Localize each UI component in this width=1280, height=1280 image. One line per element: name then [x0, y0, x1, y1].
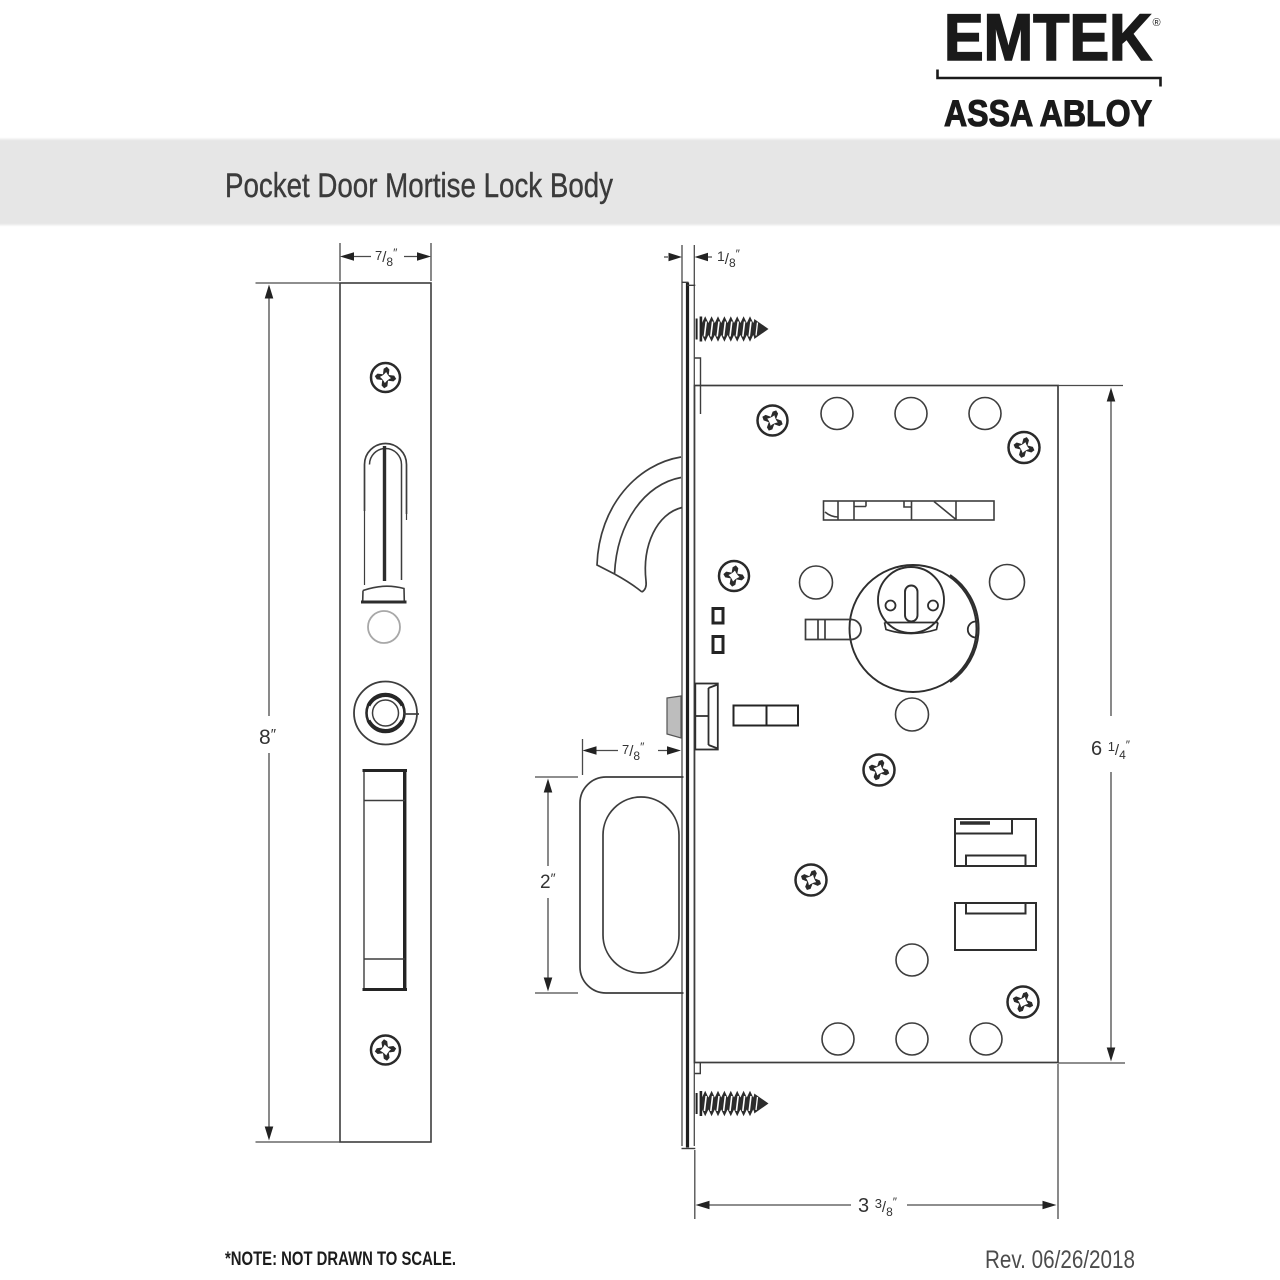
svg-text:EMTEK: EMTEK — [944, 0, 1152, 74]
svg-text:Rev. 06/26/2018: Rev. 06/26/2018 — [985, 1246, 1135, 1274]
svg-text:8″: 8″ — [259, 726, 277, 749]
svg-text:2″: 2″ — [540, 870, 556, 893]
svg-text:®: ® — [1153, 17, 1161, 29]
svg-text:7/8″: 7/8″ — [375, 246, 398, 269]
svg-text:6 1/4″: 6 1/4″ — [1091, 738, 1131, 762]
svg-text:1/8″: 1/8″ — [717, 247, 741, 270]
svg-text:*NOTE: NOT DRAWN TO SCALE.: *NOTE: NOT DRAWN TO SCALE. — [225, 1249, 456, 1270]
svg-text:7/8″: 7/8″ — [622, 740, 645, 763]
svg-text:3 3/8″: 3 3/8″ — [858, 1195, 898, 1219]
svg-text:ASSA ABLOY: ASSA ABLOY — [944, 93, 1152, 134]
svg-text:Pocket Door Mortise Lock Body: Pocket Door Mortise Lock Body — [225, 167, 613, 205]
